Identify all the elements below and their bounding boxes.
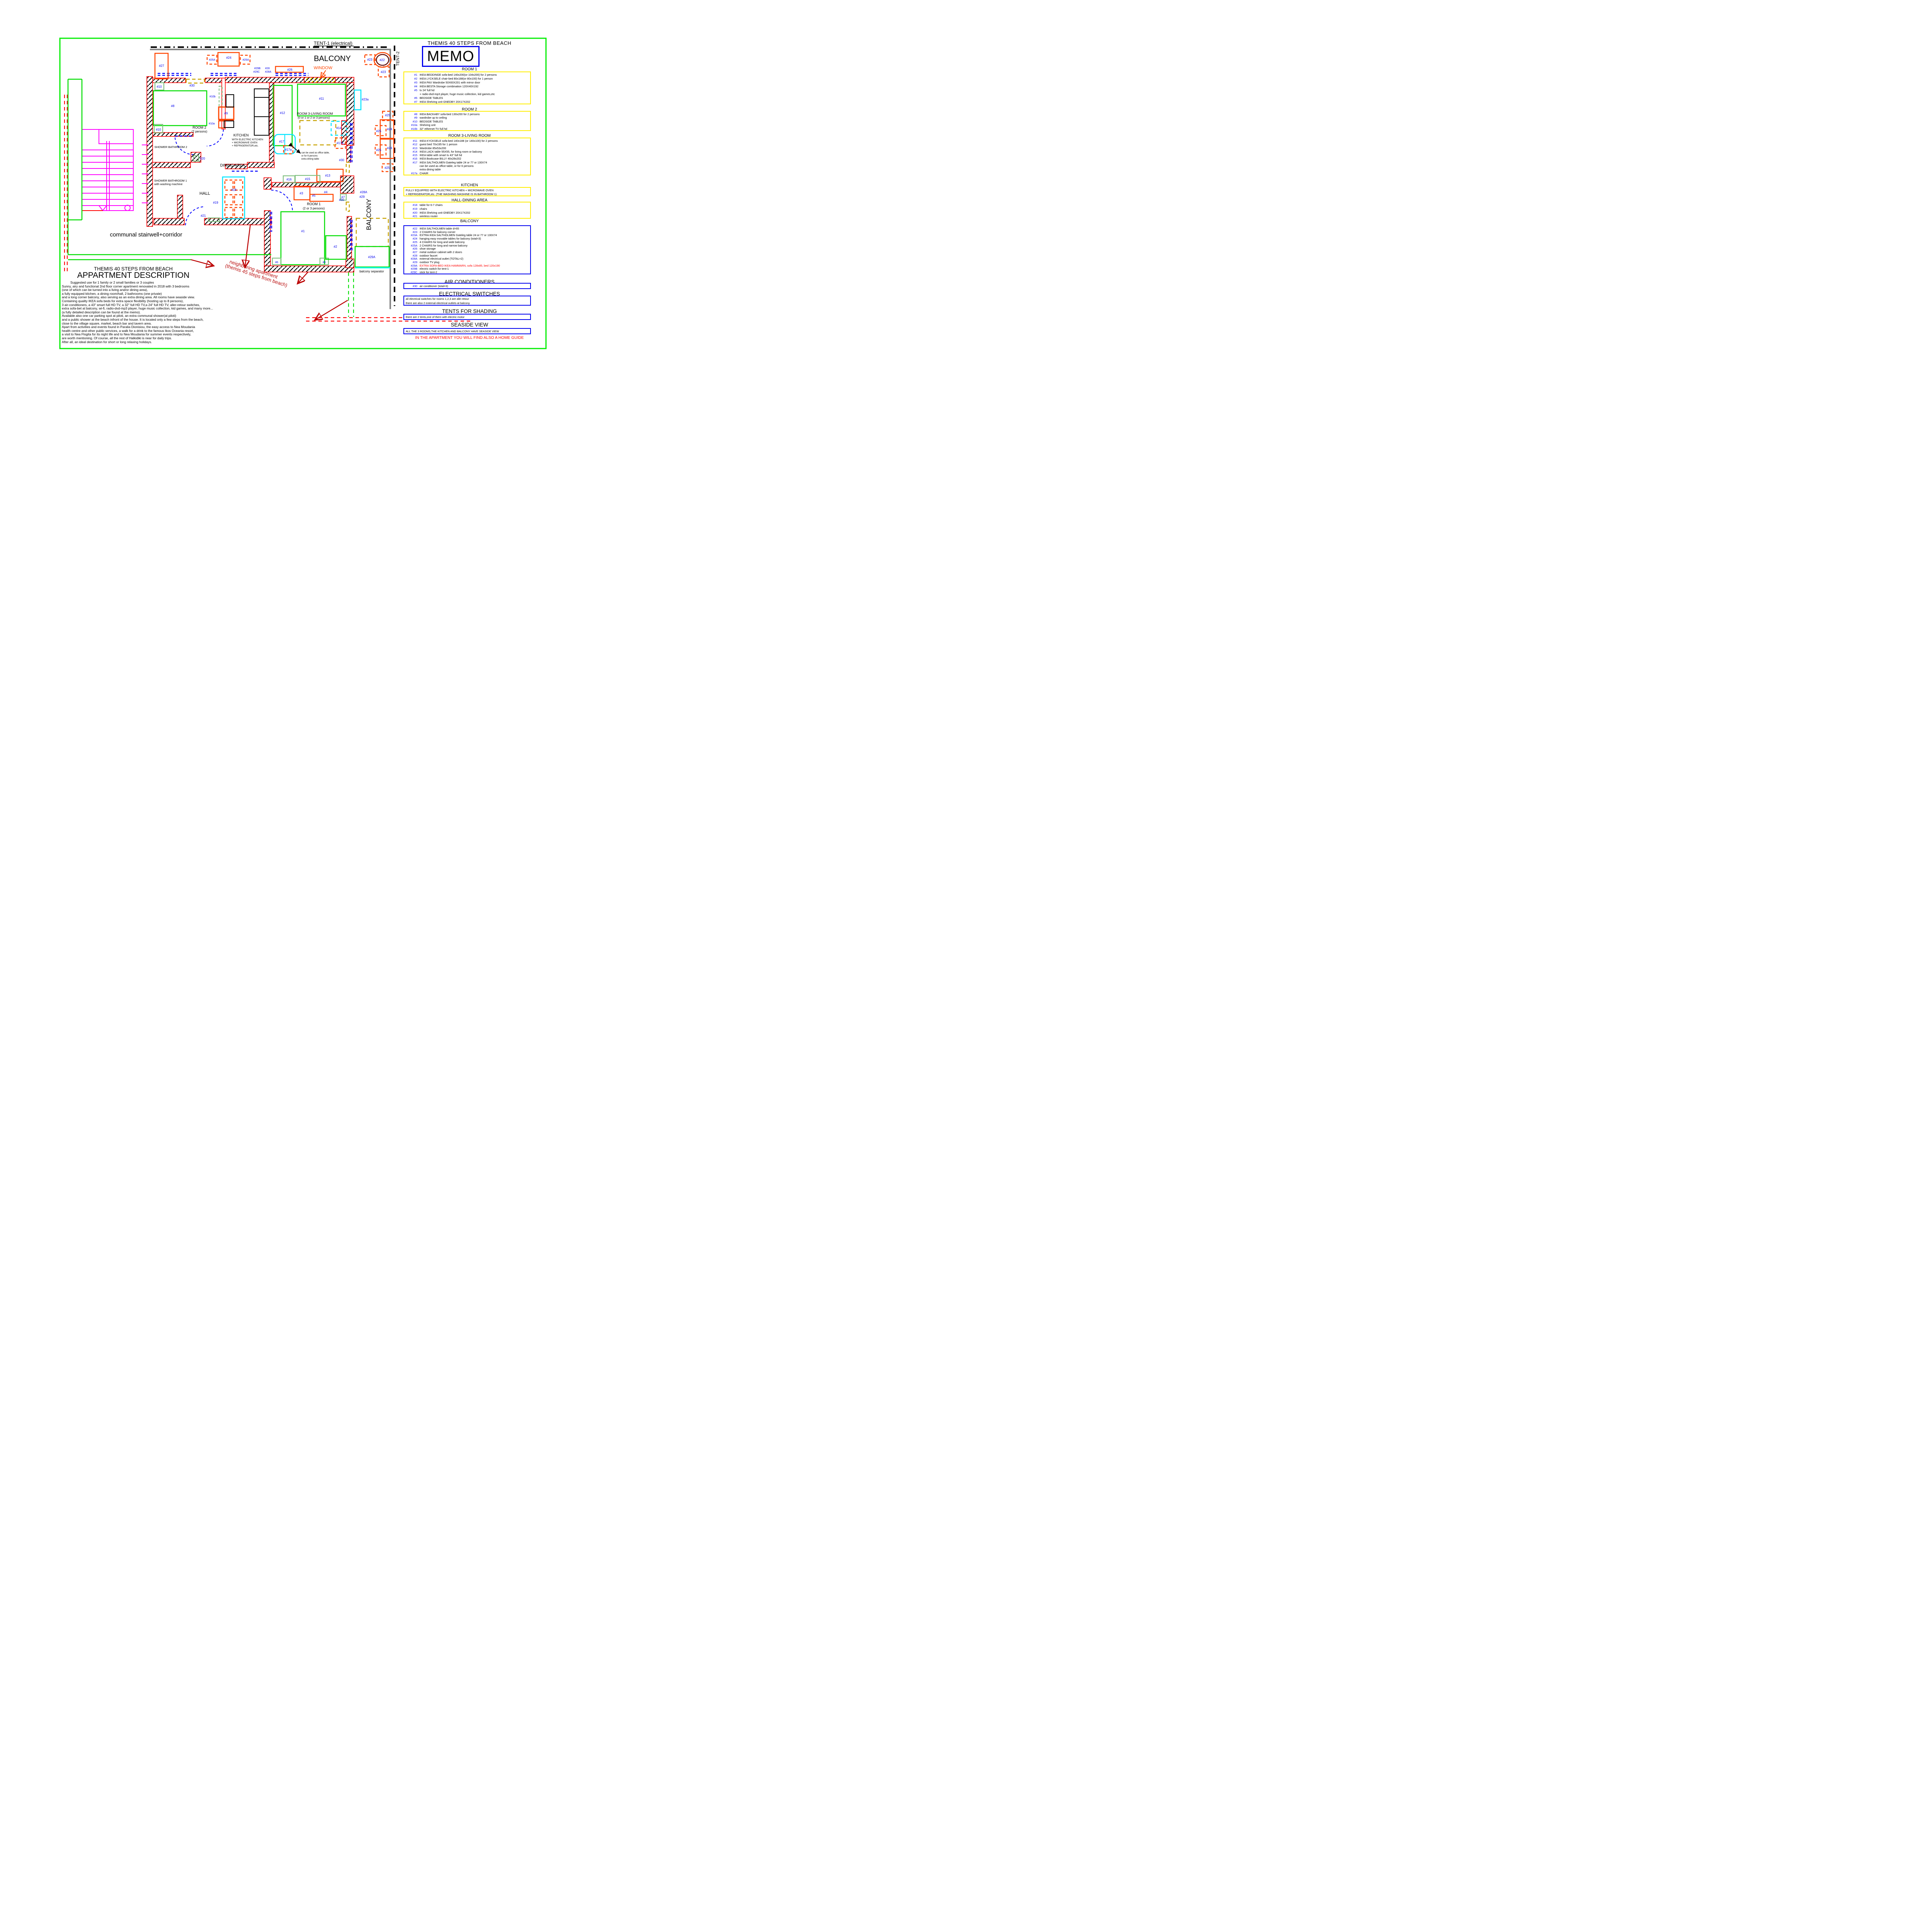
wall-left [147,77,153,226]
memo-item-row: #11IKEA KYCKSELE sofa-bed 140x188 (or 14… [406,139,529,143]
memo-item-text: Wardrobe 85x53x200 [420,146,446,150]
memo-item-row: #18table for 6-7 chairs [406,203,529,207]
wall-top-room2b [205,78,224,83]
memo-item-text: chairs [420,207,427,211]
plan-label-38: or for 6 persons [301,155,318,157]
ac-30-room2 [186,79,204,83]
memo-item-text: IKEA BEDDINGE sofa-bed 140x200(or 104x20… [420,73,497,77]
plan-label-27: ROOM 3-LIVING ROOM [297,112,333,116]
memo-item-row: #2IKEA LYCKSELE chair-bed 80x188(or 80x1… [406,77,529,81]
dining-chairs-19 [225,180,243,218]
memo-item-row: #29AEXTRA SOFA-BED IKEA HAMMARN, sofa 12… [406,264,529,267]
ac-30-balcony-2 [346,202,349,211]
extra-table-23a [354,90,361,110]
memo-item-id: #3 [406,81,417,84]
memo-item-id: #16 [406,157,417,160]
plan-label-22: #10a [209,122,215,125]
memo-item-row: #7IKEA Shelving unit GNEDBY 20X17X202 [406,100,529,104]
shelf-black-1 [226,95,234,107]
memo-title: MEMO [427,48,474,65]
memo-item-text: IKEA Shelving unit GNEDBY 20X17X202 [420,100,470,104]
window-arrow [321,70,326,78]
memo-item-text: IKEA table with smart tv 43" full hd [420,153,462,157]
memo-item-row: #24hanging easy movable tables for balco… [406,237,529,240]
memo-item-id: #10 [406,120,417,123]
plan-label-9: #22 [379,58,385,62]
plan-label-12: #29C [253,71,260,73]
wall-hall-bottom-left [154,218,184,225]
memo-item-row: #29outdoor TV plug [406,260,529,264]
memo-item-row: #28Aexternal electrical outlet (TOTAL=2) [406,257,529,260]
memo-item-text: stick for tent-2 [420,270,437,274]
memo-item-id: #10a [406,123,417,127]
description-line-16: After all, an ideal destination for shor… [62,340,205,344]
memo-item-text: EXTRA IKEA SALTHOLMEN Gateleg table 24 o… [420,233,497,237]
sofa-open-area [300,121,336,145]
memo-item-text: electric switch for tent-1 [420,267,449,270]
memo-item-row: #29Cstick for tent-2 [406,270,529,274]
memo-item-id: #2 [406,77,417,80]
memo-item-row: #12guest bed 70x195 for 1 person [406,143,529,146]
memo-item-text: Shelving unit [420,123,435,127]
memo-item-row: #10b32" ethernet TV full hd [406,127,529,131]
memo-item-id: #22 [406,227,417,230]
plan-label-50: #18 [231,188,236,192]
memo-item-row: FULLY EQUIPPED WITH ELECTRIC KITCHEN + M… [406,189,529,192]
plan-label-11: #29B [254,67,261,70]
memo-item-text: IKEA BACKABY sofa-bed 130x200 for 2 pers… [420,112,480,116]
plan-label-14: #28A [265,71,272,73]
plan-label-61: ROOM 1 [307,202,321,206]
memo-item-id: #29A [406,264,417,267]
memo-section-title-5: BALCONY [403,219,536,223]
wall-room1-bottom [264,266,354,272]
plan-label-45: #20 [200,157,205,160]
memo-section-title-8: TENTS FOR SHADING [403,308,536,314]
plan-label-72: #24 [387,146,392,150]
apartment-walls [147,77,354,272]
memo-sheet-title: THEMIS 40 STEPS FROM BEACH [403,40,536,46]
memo-item-text: wardrobe up to ceiling [420,116,447,119]
memo-section-box-0: #1IKEA BEDDINGE sofa-bed 140x200(or 104x… [403,71,531,104]
plan-label-17: #10 [156,85,162,88]
plan-label-40: KITCHEN [233,133,249,137]
plan-label-3: TENT-2 [396,51,400,66]
plan-label-19: #10 [156,128,161,131]
memo-item-text: outdoor faucet [420,254,437,257]
memo-item-text: IKEA Bookcase BILLY 40x28x202 [420,157,461,160]
memo-title-box: MEMO [422,46,480,67]
ac-30-balcony-1 [346,162,349,172]
plan-label-5: #25A [209,59,216,61]
memo-item-text: table for 6-7 chairs [420,203,443,207]
plan-label-43: + REFRIGERATOR,etc. [232,145,259,147]
memo-item-text: IKEA PAX Wardrobe 50X60X201 with mirror … [420,81,480,84]
plan-label-46: SHOWER BATHROOM 1 [154,179,187,182]
plan-label-36: #17a [285,148,292,151]
memo-item-row: #1IKEA BEDDINGE sofa-bed 140x200(or 104x… [406,73,529,77]
memo-item-row: #17IKEA SALTHOLMEN Gateleg table 24 or 7… [406,161,529,164]
memo-item-id: #28 [406,254,417,257]
plan-label-56: #5 [312,194,316,197]
memo-item-text: outdoor TV plug [420,260,439,264]
memo-item-row: #10aShelving unit [406,123,529,127]
memo-item-row: there are also 2 external electrical out… [406,301,529,306]
memo-item-text: air conditioner (total=3) [420,284,448,288]
memo-item-id: #17 [406,161,417,164]
plan-label-55: #3 [300,192,303,195]
memo-item-id: #14 [406,150,417,153]
memo-item-row: ALL THE 3 ROOMS,THE KITCHEN AND BALCONY … [406,330,529,334]
memo-section-title-9: SEASIDE VIEW [403,322,536,328]
memo-item-id: #29C [406,270,417,274]
plan-label-54: #15 [305,177,310,181]
memo-item-row: #29Belectric switch for tent-1 [406,267,529,270]
wall-corner-block [340,176,354,193]
plan-label-1: BALCONY [314,54,351,63]
memo-item-row: #8IKEA BACKABY sofa-bed 130x200 for 2 pe… [406,112,529,116]
plan-label-39: extra dining table [301,158,319,160]
memo-item-text: EXTRA SOFA-BED IKEA HAMMARN, sofa 128x85… [420,264,500,267]
memo-item-text: IKEA LYCKSELE chair-bed 80x188(or 80x100… [420,77,493,80]
wall-corner-br [346,259,354,268]
plan-label-41: WITH ELECTRIC KITCHEN [232,138,263,141]
memo-section-box-1: #8IKEA BACKABY sofa-bed 130x200 for 2 pe… [403,111,531,131]
memo-item-id: #15 [406,153,417,157]
plan-label-66: #6 [323,261,326,264]
memo-line-text: there are 2 tents,one of them with elect… [406,315,464,319]
memo-item-row: #19chairs [406,207,529,211]
memo-section-box-4: #18table for 6-7 chairs#19chairs#20IKEA … [403,202,531,219]
memo-item-id: #18 [406,203,417,207]
plan-label-25: #12 [280,111,285,115]
plan-label-26: #11 [319,97,324,100]
plan-label-16: #30 [189,84,195,87]
memo-item-row: #23AEXTRA IKEA SALTHOLMEN Gateleg table … [406,233,529,237]
plan-label-0: TENT-1 (electrical) [314,41,352,46]
memo-item-id: #6 [406,96,417,100]
plan-label-71: #25 [376,148,381,152]
plan-label-70: #24 [387,128,392,131]
wall-top-kitchen-room3 [225,77,304,83]
memo-item-text: tv 24' full hd [420,88,434,92]
plan-label-18: #8 [171,104,175,108]
memo-item-text: 2 CHAIRS for balcony corner [420,230,456,234]
memo-item-id: #7 [406,100,417,104]
plan-label-64: #2 [334,245,337,248]
memo-item-text: metal outdoor cabinet with 2 doors [420,250,462,254]
plan-label-59: #28A [360,190,367,194]
memo-item-text: 32" ethernet TV full hd [420,127,447,131]
plan-label-2: WINDOW [314,66,333,70]
memo-item-text: external electrical outlet (TOTAL=2) [420,257,463,260]
bed-8 [153,91,207,126]
plan-label-62: (2 or 3 persons) [303,207,325,210]
memo-item-id: #5 [406,88,417,92]
plan-label-24: (2 persons) [192,130,207,133]
memo-line-text: there are also 2 external electrical out… [406,301,470,305]
plan-label-13: #28 [265,67,270,70]
memo-item-text: + radio-dvd-mp3 player, huge music colle… [420,92,495,96]
plan-label-7: #25A [243,59,249,61]
apartment-description: THEMIS 40 STEPS FROM BEACH APPARTMENT DE… [62,266,205,344]
guest-bed-12 [273,85,292,146]
plan-label-32: #13 [325,174,330,177]
plan-label-21: #9 [224,112,228,115]
plan-label-48: DINING AREA [220,163,245,168]
memo-item-text: IKEA Shelving unit GNEDBY 20X17X202 [420,211,470,214]
memo-item-text: BEDSIDE TABLES [420,120,443,123]
plan-label-51: #19 [213,201,218,204]
memo-section-box-3: FULLY EQUIPPED WITH ELECTRIC KITCHEN + M… [403,187,531,196]
memo-item-id: #27 [406,250,417,254]
memo-item-id: #4 [406,85,417,88]
memo-item-row: #28outdoor faucet [406,254,529,257]
sofa-bed-1 [281,212,325,265]
plan-label-47: with washing machine [154,182,182,186]
plan-label-49: HALL [199,191,210,196]
plan-label-53: #16 [286,178,292,181]
plan-label-33: #30 [339,158,344,162]
plan-label-65: #6 [275,261,278,264]
memo-item-row: #22IKEA SALTHOLMEN table d=65 [406,227,529,230]
memo-item-id: #13 [406,146,417,150]
memo-item-text: BEDSIDE TABLES [420,96,443,100]
memo-item-row: + radio-dvd-mp3 player, huge music colle… [406,92,529,96]
memo-item-id: #10b [406,127,417,131]
memo-item-row: #21wireless router [406,214,529,218]
memo-line-text: + REFRIGERATOR,etc. (THE WASHING MASHINE… [406,192,497,196]
memo-item-row: #17aCHAIR [406,172,529,175]
wall-room1-left [264,211,270,269]
wall-room3-notch [342,121,347,145]
memo-section-box-6: #30air conditioner (total=3) [403,283,531,289]
plan-label-52: #21 [201,214,206,218]
memo-item-text: can be used as office table, or for 6 pe… [420,164,474,168]
memo-item-id: #24 [406,237,417,240]
memo-item-row: #10BEDSIDE TABLES [406,120,529,123]
description-subtitle: APPARTMENT DESCRIPTION [62,271,205,280]
memo-item-row: #3IKEA PAX Wardrobe 50X60X201 with mirro… [406,81,529,85]
memo-item-row: #13Wardrobe 85x53x200 [406,146,529,150]
memo-item-text: guest bed 70x195 for 1 person [420,143,457,146]
plan-label-67: #29A [368,255,376,259]
plan-label-20: #10b [209,95,216,98]
memo-item-id: #23A [406,233,417,237]
memo-item-row: #20IKEA Shelving unit GNEDBY 20X17X202 [406,211,529,215]
memo-section-box-7: all electrical switches for rooms 1,2,3 … [403,296,531,306]
memo-item-text: IKEA LACK table 55X55, for living room o… [420,150,482,153]
wall-room1-stub [264,178,271,189]
stairwell [82,129,148,211]
memo-item-text: 2 CHAIRS for long and narrow balcony [420,244,468,247]
plan-label-63: #1 [301,230,305,233]
memo-section-box-2: #11IKEA KYCKSELE sofa-bed 140x188 (or 14… [403,138,531,175]
plan-label-44: SHOWER BATHROOM 2 [155,145,187,149]
memo-item-id: #8 [406,112,417,116]
memo-item-text: IKEA SALTHOLMEN Gateleg table 24 or 77 o… [420,161,487,164]
memo-section-title-0: ROOM 1 [403,67,536,71]
plan-label-60: #29 [359,195,365,199]
kitchen-counter [254,89,269,135]
memo-item-id: #17a [406,172,417,175]
memo-item-id: #29 [406,260,417,264]
memo-item-text: IKEA SALTHOLMEN table d=65 [420,227,459,230]
memo-section-box-5: #22IKEA SALTHOLMEN table d=65#232 CHAIRS… [403,225,531,274]
dining-table-18 [223,177,245,219]
memo-item-id: #30 [406,284,417,288]
plan-label-29: #23a [362,98,369,101]
plan-label-31: #17a [337,141,344,145]
memo-item-row: #5tv 24' full hd [406,88,529,92]
memo-item-row: all electrical switches for rooms 1,2,3 … [406,297,529,301]
plan-label-15: #26 [287,68,293,71]
memo-item-id: #28A [406,257,417,260]
memo-item-row: #30air conditioner (total=3) [406,284,529,289]
memo-item-row: + REFRIGERATOR,etc. (THE WASHING MASHINE… [406,192,529,196]
wall-room3-right [347,83,354,145]
memo-section-box-8: there are 2 tents,one of them with elect… [403,314,531,320]
memo-item-row: #14IKEA LACK table 55X55, for living roo… [406,150,529,153]
plan-label-6: #24 [226,56,231,60]
plan-label-73: #25 [384,166,390,170]
memo-item-text: 4 CHAIRS for long and wide balcony [420,240,465,244]
wall-kitchen-ledge [247,162,274,168]
memo-line-text: FULLY EQUIPPED WITH ELECTRIC KITCHEN + M… [406,189,493,192]
memo-item-id: #25 [406,240,417,244]
memo-footer-note: IN THE APARTMENT YOU WILL FIND ALSO A HO… [403,336,536,340]
memo-item-row: can be used as office table, or for 6 pe… [406,164,529,168]
wall-bath2-bottom [152,162,190,168]
plan-label-30: #14 [336,126,342,130]
memo-item-text: IKEA KYCKSELE sofa-bed 140x188 (or 140x1… [420,139,498,143]
memo-item-row: #254 CHAIRS for long and wide balcony [406,240,529,244]
memo-item-row: #6BEDSIDE TABLES [406,96,529,100]
memo-item-id: #25A [406,244,417,247]
memo-item-id: #9 [406,116,417,119]
plan-label-75: balcony separator [359,270,384,273]
memo-item-text: wireless router [420,214,438,218]
memo-line-text: ALL THE 3 ROOMS,THE KITCHEN AND BALCONY … [406,330,499,333]
plan-label-69: #25 [376,129,381,133]
memo-item-text: shoe storage [420,247,436,250]
memo-item-row: #25A2 CHAIRS for long and narrow balcony [406,244,529,247]
memo-item-id: #23 [406,230,417,234]
memo-item-row: there are 2 tents,one of them with elect… [406,315,529,320]
plan-label-8: #23 [367,58,372,61]
memo-item-id: #11 [406,139,417,143]
plan-label-23: ROOM 2 [192,126,206,129]
memo-item-id: #20 [406,211,417,214]
plan-label-4: #27 [159,64,164,68]
floorplan-sheet: TENT-1 (electrical)BALCONYWINDOWTENT-2#2… [0,0,618,396]
memo-item-id: #1 [406,73,417,77]
memo-item-text: extra dining table [420,168,441,171]
memo-item-text: IKEA BESTA Storage combination 120X40X19… [420,85,478,88]
memo-item-id: #29B [406,267,417,270]
memo-item-row: #4IKEA BESTA Storage combination 120X40X… [406,85,529,88]
plan-label-68: #25 [385,114,390,117]
plan-label-28: (0 or 1 or 2 or 3 persons) [298,116,330,119]
description-body: Suggested use for 1 family or 2 small fa… [62,281,205,344]
plan-label-35: #17 [279,140,284,143]
memo-item-row: #27metal outdoor cabinet with 2 doors [406,250,529,254]
plan-label-58: #7 [342,196,345,199]
memo-item-row: extra dining table [406,168,529,171]
memo-item-text: hanging easy movable tables for balcony … [420,237,481,240]
memo-item-row: #15IKEA table with smart tv 43" full hd [406,153,529,157]
memo-line-text: all electrical switches for rooms 1,2,3 … [406,297,469,301]
wall-top-right [335,77,354,83]
memo-item-text: CHAIR [420,172,428,175]
memo-section-box-9: ALL THE 3 ROOMS,THE KITCHEN AND BALCONY … [403,328,531,334]
memo-item-id: #12 [406,143,417,146]
memo-item-row: #232 CHAIRS for balcony corner [406,230,529,234]
memo-item-row: #16IKEA Bookcase BILLY 40x28x202 [406,157,529,160]
wall-window-yellow [304,77,335,83]
plan-label-74: BALCONY [365,199,372,230]
memo-item-row: #26shoe storage [406,247,529,250]
memo-item-id: #21 [406,214,417,218]
plan-label-76: communal stairwell+corridor [110,231,182,238]
plan-label-42: + MICROWAVE OVEN [232,141,257,144]
plan-label-37: can be used as office table, [301,152,330,154]
plan-label-57: #4 [324,190,328,194]
memo-item-id: #26 [406,247,417,250]
memo-item-id: #19 [406,207,417,211]
memo-item-row: #9wardrobe up to ceiling [406,116,529,119]
plan-label-10: #23 [381,70,386,74]
